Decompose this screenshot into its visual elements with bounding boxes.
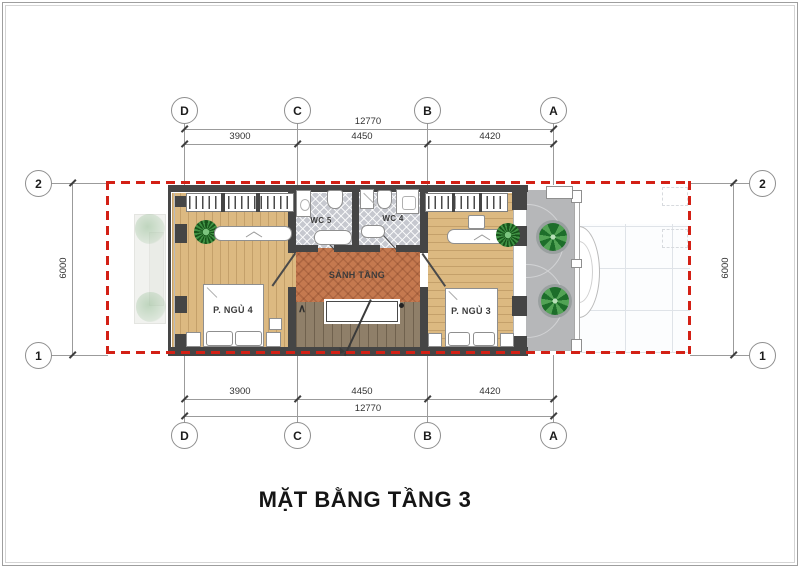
dim-bottom-overall: 12770 <box>328 404 408 414</box>
dim-top-seg-3: 4420 <box>450 132 530 142</box>
grid-bubble-2-right: 2 <box>749 170 776 197</box>
boundary-dashed-top <box>106 181 691 184</box>
wall-pier <box>512 192 527 210</box>
wardrobe-divider <box>452 193 455 212</box>
hanging-clothes-pattern <box>189 196 291 209</box>
wardrobe-divider <box>479 193 482 212</box>
wall-pier <box>512 296 527 316</box>
grid-line-2-right <box>690 183 750 184</box>
ghost-outline <box>662 229 688 248</box>
hanging-clothes-pattern <box>428 196 505 209</box>
wc4-sink <box>396 189 419 214</box>
grid-line-1-right <box>690 355 750 356</box>
grid-bubble-D-top: D <box>171 97 198 124</box>
dim-left: 6000 <box>59 248 69 288</box>
chevron-mark-icon <box>473 234 491 241</box>
wall-post <box>571 259 582 268</box>
sink-basin <box>402 196 416 210</box>
bedroom3-wardrobe <box>425 193 508 212</box>
grid-line-D-top <box>184 123 185 185</box>
grid-line-A-top <box>553 123 554 185</box>
pillow <box>235 331 262 346</box>
wall-bedroom4-hall-lower <box>288 287 296 347</box>
grid-bubble-C-top: C <box>284 97 311 124</box>
stool <box>269 318 282 330</box>
dim-bottom-seg-1: 3900 <box>200 387 280 397</box>
nightstand <box>266 332 281 347</box>
chevron-mark-icon <box>245 231 263 238</box>
wc4-toilet <box>377 190 392 209</box>
grid-line-2-left <box>51 183 108 184</box>
boundary-dashed-bottom <box>106 351 691 354</box>
pillow <box>448 332 470 346</box>
wc5-label: WC 5 <box>297 216 345 225</box>
grid-bubble-1-left: 1 <box>25 342 52 369</box>
wc4-shower <box>360 189 374 209</box>
wall-hall-bedroom3-lower <box>420 287 428 347</box>
wc5-toilet <box>327 190 343 209</box>
balcony-top-box <box>546 186 573 199</box>
wall-pier <box>175 296 187 313</box>
potted-plant-icon <box>541 287 569 315</box>
balcony-deck <box>526 190 576 351</box>
grid-line-C-top <box>297 123 298 185</box>
glass-door-strip <box>513 193 527 347</box>
grid-line-C-bottom <box>297 355 298 423</box>
grid-bubble-1-right: 1 <box>749 342 776 369</box>
floor-plan-sheet: 12770 3900 4450 4420 3900 4450 4420 1277… <box>0 0 800 568</box>
chair <box>468 215 485 229</box>
wall-top <box>168 185 528 192</box>
grid-bubble-B-bottom: B <box>414 422 441 449</box>
nightstand <box>500 333 514 347</box>
bedroom4-wardrobe <box>186 193 294 212</box>
grid-bubble-A-bottom: A <box>540 422 567 449</box>
wall-wc-hall <box>296 245 318 252</box>
ghost-tree-icon <box>135 214 165 244</box>
ghost-outline <box>662 187 688 206</box>
drawing-title: MẶT BẰNG TẦNG 3 <box>200 487 530 513</box>
wall-wc5-wc4 <box>352 192 359 248</box>
wall-wc-hall <box>396 245 420 252</box>
balcony-glass-wall <box>574 190 580 352</box>
sink-basin <box>300 199 310 211</box>
grid-line-B-top <box>427 123 428 185</box>
nightstand <box>428 333 442 347</box>
wall-pier <box>512 336 527 347</box>
grid-bubble-B-top: B <box>414 97 441 124</box>
wall-wc-hall <box>334 245 380 252</box>
dim-bottom-seg-2: 4450 <box>322 387 402 397</box>
grid-bubble-2-left: 2 <box>25 170 52 197</box>
plant-icon <box>496 223 520 247</box>
wc4-bathtub <box>361 225 385 238</box>
grid-bubble-C-bottom: C <box>284 422 311 449</box>
dim-top-overall: 12770 <box>328 117 408 127</box>
dim-top-seg-1: 3900 <box>200 132 280 142</box>
dim-right: 6000 <box>721 248 731 288</box>
bedroom3-label: P. NGỦ 3 <box>431 306 511 316</box>
dim-line-right <box>733 183 734 356</box>
wc5-sink <box>296 190 311 217</box>
grid-bubble-A-top: A <box>540 97 567 124</box>
grid-line-1-left <box>51 355 108 356</box>
dim-line-top-overall <box>184 129 554 130</box>
pillow <box>206 331 233 346</box>
nightstand <box>186 332 201 347</box>
wall-pier <box>175 224 187 243</box>
dim-bottom-seg-3: 4420 <box>450 387 530 397</box>
wall-left-line <box>168 185 171 356</box>
ghost-tree-icon <box>136 292 166 322</box>
dim-line-bottom-segments <box>184 399 554 400</box>
wardrobe-divider <box>221 193 225 212</box>
window-glazing-line <box>174 193 175 347</box>
hall-label: SẢNH TẦNG <box>307 270 407 280</box>
dim-line-bottom-overall <box>184 416 554 417</box>
wardrobe-divider <box>256 193 260 212</box>
dim-line-left <box>72 183 73 356</box>
dim-line-top-segments <box>184 144 554 145</box>
boundary-dashed-left <box>106 181 109 354</box>
dim-top-seg-2: 4450 <box>322 132 402 142</box>
pillow <box>473 332 495 346</box>
bedroom4-console <box>214 226 292 241</box>
stairs-up-arrow-icon: ∧ <box>298 304 306 314</box>
wc4-label: WC 4 <box>369 214 417 223</box>
grid-line-B-bottom <box>427 355 428 423</box>
wc5-bathtub <box>314 230 352 245</box>
potted-plant-icon <box>539 223 567 251</box>
grid-bubble-D-bottom: D <box>171 422 198 449</box>
stair-newel-dot <box>399 303 404 308</box>
boundary-dashed-right <box>688 181 691 354</box>
bedroom4-label: P. NGỦ 4 <box>193 305 273 315</box>
